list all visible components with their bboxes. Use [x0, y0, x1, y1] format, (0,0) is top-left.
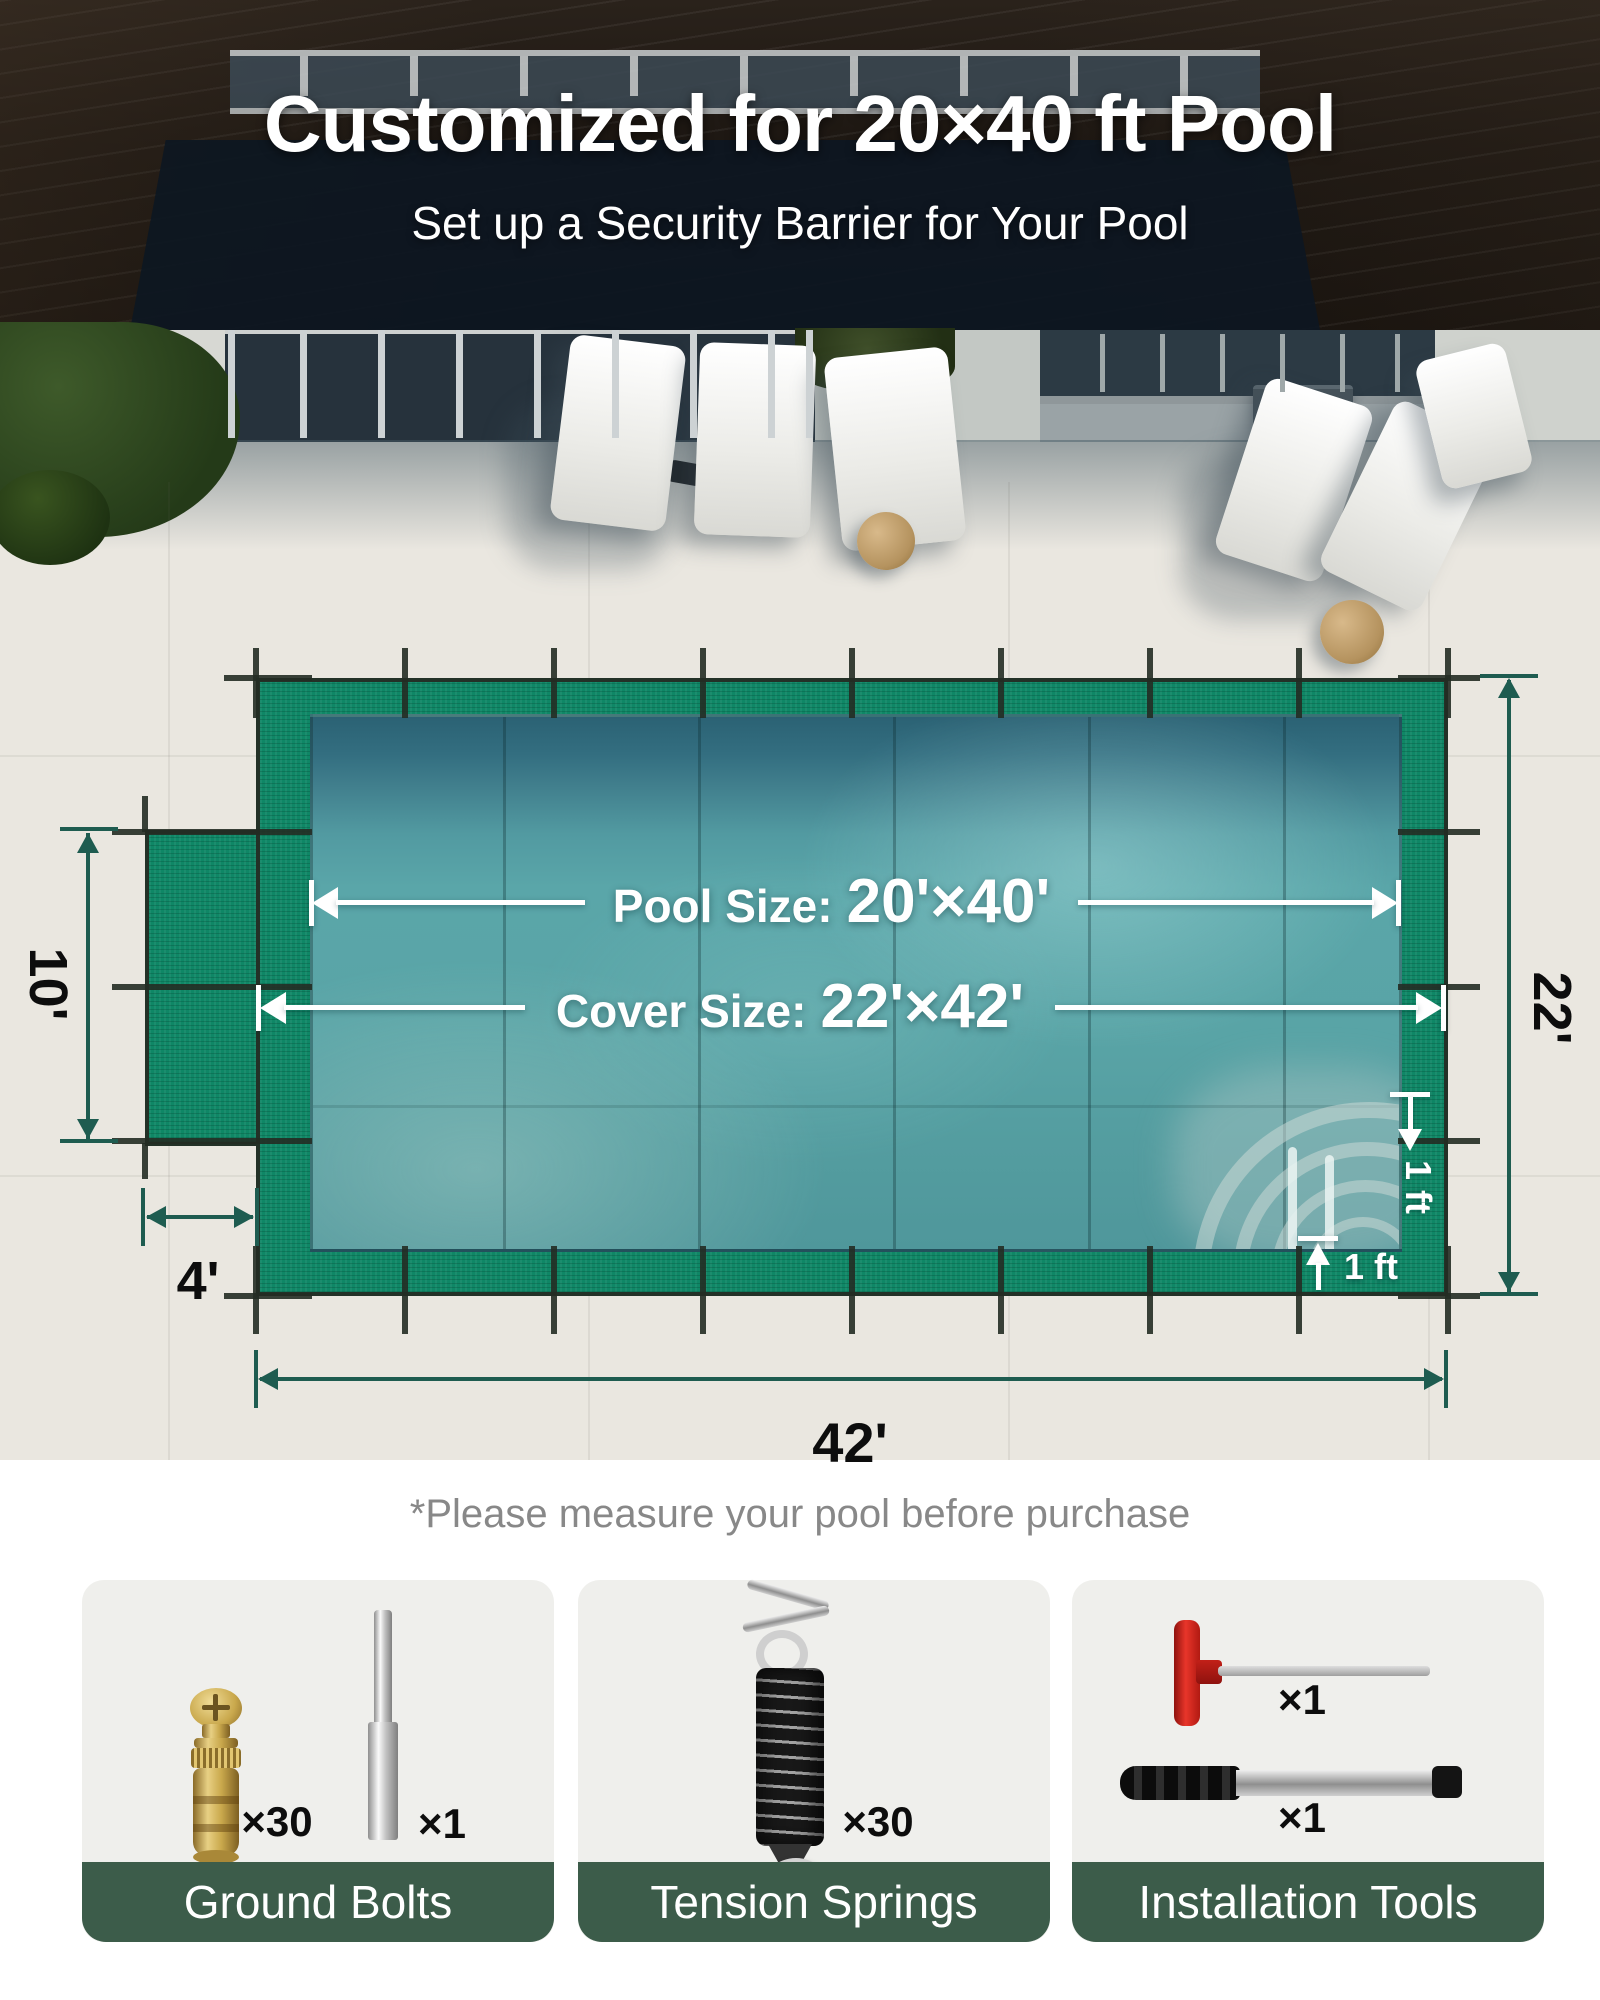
arrow-left-icon: [146, 1206, 166, 1228]
spring-qty: ×30: [833, 1798, 923, 1846]
installation-rod-image: [1236, 1770, 1436, 1796]
door-mullion-icon: [690, 330, 697, 438]
cover-strap: [142, 1143, 148, 1179]
header-banner: Customized for 20×40 ft Pool Set up a Se…: [0, 0, 1600, 330]
cover-size-text: Cover Size: 22'×42': [525, 971, 1055, 1042]
page-subtitle: Set up a Security Barrier for Your Pool: [0, 196, 1600, 250]
pool-size-line-left: [336, 900, 585, 905]
installation-rod-image: [1432, 1766, 1462, 1798]
door-mullion-icon: [768, 330, 775, 438]
door-mullion-icon: [612, 330, 619, 438]
cover-strap: [1296, 1246, 1302, 1334]
cover-strap: [1398, 1293, 1480, 1299]
lounge-chair: [694, 342, 817, 538]
cover-strap: [1398, 675, 1480, 681]
overlap-right-stem: [1408, 1097, 1413, 1129]
ground-bolt-qty: ×30: [232, 1798, 322, 1846]
window-mullion-icon: [1340, 334, 1345, 392]
arrow-right-icon: [234, 1206, 254, 1228]
cover-seam: [1088, 717, 1091, 1252]
cover-strap: [998, 648, 1004, 718]
installation-rod-qty: ×1: [1262, 1794, 1342, 1842]
cover-size-label: Cover Size:: [556, 984, 807, 1038]
side-table: [1320, 600, 1384, 664]
cover-strap: [700, 648, 706, 718]
arrow-right-icon: [1372, 887, 1398, 919]
dim-4ft-cap-left: [141, 1188, 145, 1246]
pool-rail: [1288, 1147, 1297, 1252]
cover-strap: [253, 1246, 259, 1334]
dim-4ft-label: 4': [158, 1250, 238, 1312]
overlap-bottom-label: 1 ft: [1344, 1246, 1434, 1288]
door-mullion-icon: [806, 330, 813, 438]
installation-rod-image: [1120, 1766, 1240, 1800]
cover-size-value: 22'×42': [820, 971, 1024, 1042]
cover-strap: [849, 648, 855, 718]
window-mullion-icon: [1100, 334, 1105, 392]
card-label-tension-springs: Tension Springs: [578, 1862, 1050, 1942]
window-mullion-icon: [1395, 334, 1400, 392]
cover-strap: [998, 1246, 1004, 1334]
dim-10ft-cap-bottom: [60, 1139, 118, 1143]
card-label-ground-bolts: Ground Bolts: [82, 1862, 554, 1942]
cover-strap: [551, 648, 557, 718]
overlap-bottom-stem: [1316, 1263, 1321, 1290]
cover-strap: [551, 1246, 557, 1334]
cover-strap: [1398, 829, 1480, 835]
ground-bolt-image: [213, 1694, 218, 1721]
arrow-right-icon: [1416, 992, 1442, 1024]
pool-size-text: Pool Size: 20'×40': [585, 866, 1078, 937]
dim-10ft-cap-top: [60, 827, 118, 831]
arrow-down-icon: [1498, 1272, 1520, 1292]
card-installation-tools: ×1 ×1 Installation Tools: [1072, 1580, 1544, 1942]
door-mullion-icon: [300, 330, 307, 438]
cover-strap: [402, 1246, 408, 1334]
arrow-left-icon: [258, 1368, 278, 1390]
arrow-up-icon: [77, 833, 99, 853]
pool-size-value: 20'×40': [847, 866, 1051, 937]
dim-42ft-cap-right: [1444, 1350, 1448, 1408]
pool-size-line-right: [1078, 900, 1374, 905]
card-ground-bolts: ×30 ×1 Ground Bolts: [82, 1580, 554, 1942]
cover-size-line-left: [284, 1005, 525, 1010]
cover-strap: [849, 1246, 855, 1334]
cover-strap: [224, 675, 312, 681]
ground-bolt-image: [202, 1724, 230, 1738]
door-mullion-icon: [228, 330, 235, 438]
measure-note: *Please measure your pool before purchas…: [0, 1492, 1600, 1537]
cover-strap: [1147, 1246, 1153, 1334]
cover-strap: [1445, 648, 1451, 718]
door-mullion-icon: [534, 330, 541, 438]
page-title: Customized for 20×40 ft Pool: [0, 78, 1600, 170]
arrow-up-icon: [1498, 678, 1520, 698]
arrow-right-icon: [1424, 1368, 1444, 1390]
window-sill: [1040, 396, 1435, 404]
dim-10ft-line: [86, 833, 90, 1139]
spring-image: [742, 1605, 830, 1633]
cover-strap: [142, 796, 148, 832]
window-mullion-icon: [1160, 334, 1165, 392]
cover-strap: [402, 648, 408, 718]
spring-image: [756, 1668, 824, 1846]
arrow-up-icon: [1306, 1243, 1330, 1265]
installation-pin-image: [368, 1722, 398, 1840]
cover-strap: [112, 984, 312, 990]
arrow-down-icon: [77, 1119, 99, 1139]
ground-bolt-image: [191, 1748, 241, 1768]
installation-pin-image: [374, 1610, 392, 1722]
cover-strap: [700, 1246, 706, 1334]
ground-bolt-image: [194, 1738, 238, 1748]
overlap-bottom-cap: [1298, 1236, 1338, 1241]
cover-strap: [1296, 648, 1302, 718]
arrow-left-icon: [260, 992, 286, 1024]
cover-size-line-right: [1055, 1005, 1418, 1010]
window-mullion-icon: [1280, 334, 1285, 392]
arrow-left-icon: [312, 887, 338, 919]
cover-strap: [253, 648, 259, 718]
hex-key-image: [1218, 1666, 1430, 1676]
cover-seam: [503, 717, 506, 1252]
cover-strap: [1398, 984, 1480, 990]
side-table: [857, 512, 915, 570]
installation-pin-qty: ×1: [402, 1800, 482, 1848]
card-label-installation-tools: Installation Tools: [1072, 1862, 1544, 1942]
window-mullion-icon: [1220, 334, 1225, 392]
cover-strap: [1147, 648, 1153, 718]
dim-4ft-cap-right: [255, 1188, 259, 1246]
card-tension-springs: ×30 Tension Springs: [578, 1580, 1050, 1942]
pool-size-label: Pool Size:: [613, 879, 833, 933]
hex-key-qty: ×1: [1262, 1676, 1342, 1724]
dim-42ft-label: 42': [770, 1410, 930, 1475]
door-mullion-icon: [378, 330, 385, 438]
cover-seam: [313, 1105, 1402, 1108]
door-mullion-icon: [456, 330, 463, 438]
page-root: Customized for 20×40 ft Pool Set up a Se…: [0, 0, 1600, 2000]
dim-22ft-label: 22': [1520, 966, 1584, 1050]
dim-22ft-line: [1507, 680, 1511, 1292]
cover-strap: [1445, 1246, 1451, 1334]
dim-22ft-cap-bottom: [1480, 1292, 1538, 1296]
dim-10ft-label: 10': [16, 944, 80, 1024]
overlap-right-label: 1 ft: [1399, 1145, 1437, 1229]
dim-42ft-line: [260, 1377, 1442, 1381]
